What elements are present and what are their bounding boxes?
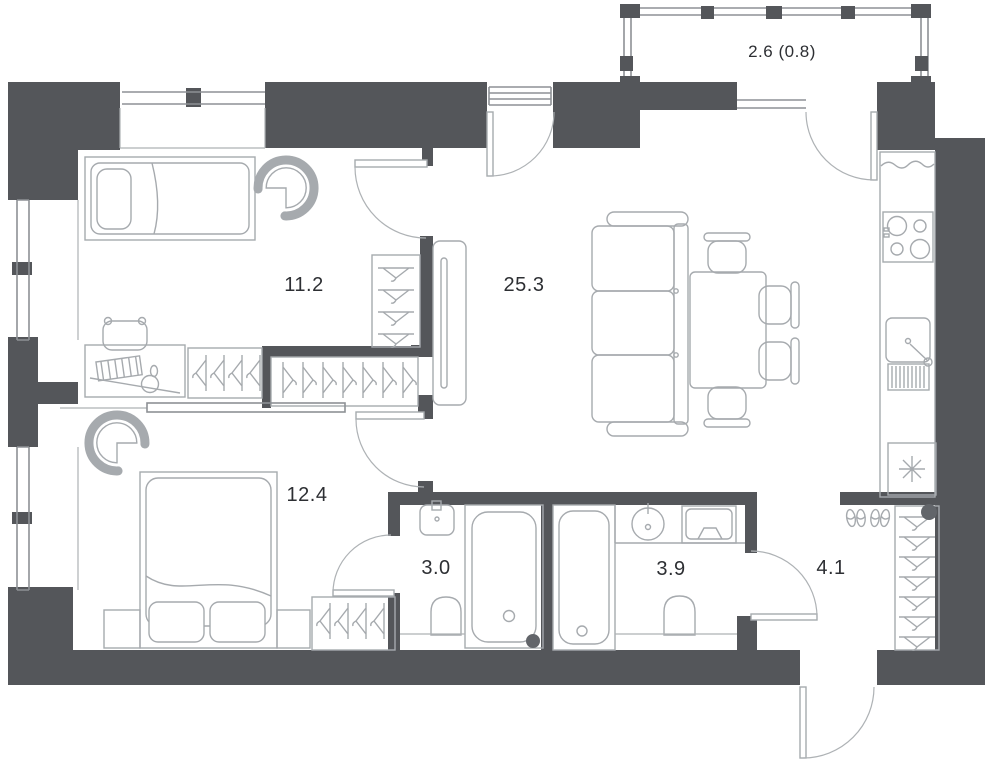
chair <box>704 233 750 273</box>
single-bed <box>85 157 255 240</box>
wardrobe-b <box>372 255 420 347</box>
dining-table <box>690 272 766 388</box>
tv-console <box>433 241 466 405</box>
french-balcony-rail <box>489 87 551 105</box>
floor-plan: 2.6 (0.8) <box>0 0 1000 766</box>
bedroom-2-furniture <box>60 403 395 650</box>
door-bathroom-1 <box>333 535 394 596</box>
chair <box>759 338 799 384</box>
drain <box>577 626 587 636</box>
mouse <box>151 366 158 377</box>
area-label-bedroom-2: 12.4 <box>287 484 328 506</box>
hallway-items <box>845 504 939 650</box>
armchair <box>252 148 326 222</box>
fridge <box>888 443 936 495</box>
desk <box>85 345 185 397</box>
washing-machine <box>682 506 736 543</box>
pillow <box>149 602 204 642</box>
dining-set <box>690 233 799 427</box>
shelf <box>147 403 345 412</box>
bedroom-1-furniture <box>85 148 420 398</box>
lamp <box>142 376 159 393</box>
area-label-bathroom-2: 3.9 <box>656 558 685 580</box>
armchair <box>77 403 151 477</box>
corridor-wardrobe <box>271 357 418 406</box>
door-bedroom-1 <box>355 160 427 238</box>
toilet <box>431 597 461 635</box>
wardrobe-a <box>188 348 262 398</box>
tv <box>441 258 447 388</box>
door-balcony <box>806 112 877 180</box>
vanity-counter <box>615 505 745 543</box>
desk-area <box>85 318 185 398</box>
kitchen-sink <box>886 318 932 390</box>
pillow <box>97 169 131 229</box>
area-label-bathroom-1: 3.0 <box>421 557 450 579</box>
nightstand <box>104 610 140 648</box>
door-bathroom-2 <box>751 551 817 620</box>
stove <box>883 212 933 262</box>
chair <box>759 282 799 328</box>
wardrobe-d <box>312 597 395 650</box>
living-room-furniture <box>433 212 799 436</box>
round-sink <box>632 503 664 540</box>
kitchen <box>880 152 936 497</box>
snowflake-icon <box>899 456 925 482</box>
pillow <box>210 602 265 642</box>
nightstand <box>277 610 310 648</box>
laptop <box>96 356 142 381</box>
riser-dot <box>526 634 540 648</box>
chair <box>704 387 750 427</box>
lamp-arm <box>90 378 180 393</box>
double-bed <box>140 472 277 648</box>
drain <box>504 611 515 622</box>
area-label-hallway: 4.1 <box>816 557 845 579</box>
shoes <box>845 509 890 527</box>
balcony-window <box>737 100 806 108</box>
door-french-window <box>487 112 554 176</box>
door-bedroom-2 <box>356 412 424 487</box>
washbasin <box>420 501 454 535</box>
door-entrance <box>800 687 874 758</box>
area-label-living-room: 25.3 <box>504 274 545 296</box>
area-label-bedroom-1: 11.2 <box>284 274 323 296</box>
balcony: 2.6 (0.8) <box>620 4 931 90</box>
balcony-area-label: 2.6 (0.8) <box>748 42 816 61</box>
toilet <box>664 596 695 635</box>
hall-wardrobe <box>895 506 939 650</box>
counter-break-line <box>881 161 934 168</box>
bathtub <box>553 505 615 650</box>
floor-plan-svg: 2.6 (0.8) <box>0 0 1000 766</box>
sofa <box>592 212 688 436</box>
bathroom-2-fixtures <box>553 503 745 650</box>
bathtub <box>465 505 543 648</box>
riser-dot <box>921 504 937 520</box>
